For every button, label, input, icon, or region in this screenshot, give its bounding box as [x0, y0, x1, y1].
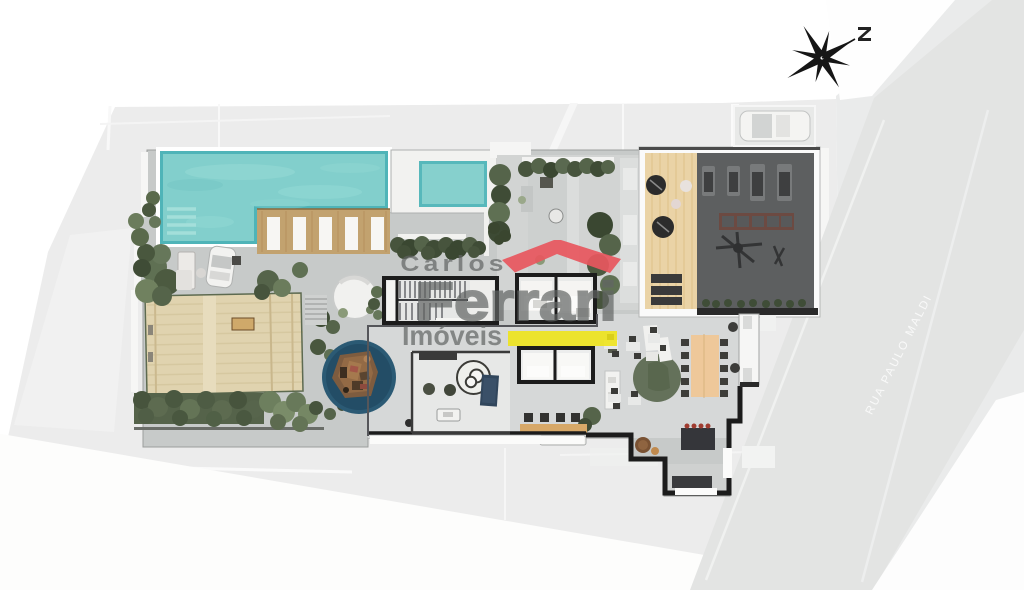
- svg-text:Imóveis: Imóveis: [402, 319, 502, 351]
